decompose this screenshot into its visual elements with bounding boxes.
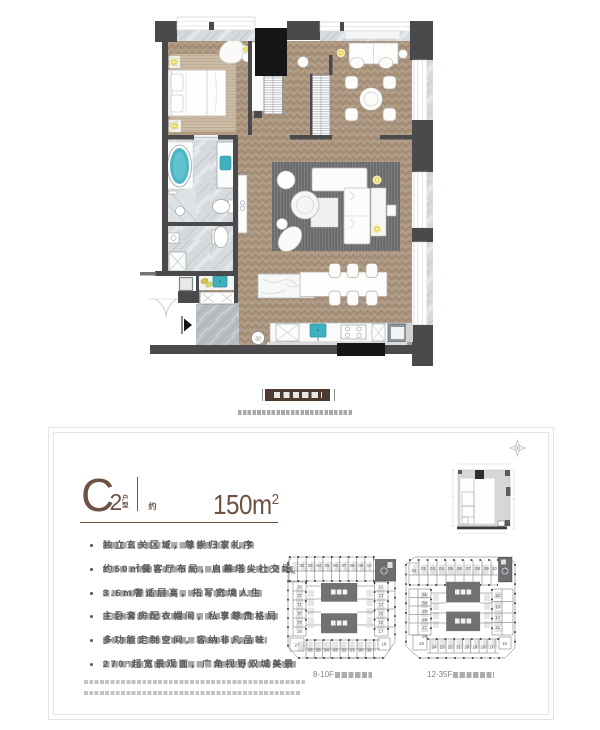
svg-text:15: 15: [495, 625, 500, 630]
svg-text:01: 01: [412, 568, 417, 573]
svg-text:22: 22: [448, 645, 453, 650]
svg-text:14: 14: [495, 615, 500, 620]
svg-text:23: 23: [440, 645, 445, 650]
svg-text:23: 23: [333, 648, 338, 653]
svg-text:12: 12: [379, 584, 384, 589]
svg-text:22: 22: [342, 648, 347, 653]
svg-text:29: 29: [422, 609, 427, 614]
svg-text:17: 17: [379, 629, 384, 634]
svg-text:18: 18: [481, 645, 486, 650]
svg-text:21: 21: [456, 645, 461, 650]
svg-text:20: 20: [359, 648, 364, 653]
svg-text:31: 31: [297, 602, 302, 607]
svg-text:04: 04: [439, 566, 444, 571]
svg-text:08: 08: [475, 566, 480, 571]
svg-text:07: 07: [466, 566, 471, 571]
svg-text:25: 25: [419, 641, 424, 646]
svg-text:10: 10: [492, 566, 497, 571]
svg-text:04: 04: [316, 563, 321, 568]
svg-text:08: 08: [350, 563, 355, 568]
svg-text:16: 16: [379, 620, 384, 625]
svg-text:24: 24: [324, 648, 329, 653]
svg-text:28: 28: [297, 629, 302, 634]
svg-text:28: 28: [422, 617, 427, 622]
svg-text:29: 29: [297, 620, 302, 625]
svg-text:20: 20: [464, 645, 469, 650]
svg-text:27: 27: [295, 643, 300, 648]
svg-text:16: 16: [502, 641, 507, 646]
svg-text:19: 19: [473, 645, 478, 650]
svg-text:02: 02: [300, 563, 305, 568]
svg-text:33: 33: [297, 584, 302, 589]
svg-text:10: 10: [367, 563, 372, 568]
svg-text:26: 26: [308, 648, 313, 653]
svg-text:18: 18: [382, 642, 387, 647]
svg-text:03: 03: [430, 566, 435, 571]
svg-text:01: 01: [291, 570, 296, 575]
svg-text:02: 02: [421, 566, 426, 571]
svg-text:14: 14: [379, 602, 384, 607]
svg-text:32: 32: [297, 593, 302, 598]
svg-text:13: 13: [495, 605, 500, 610]
svg-text:09: 09: [358, 563, 363, 568]
svg-text:07: 07: [342, 563, 347, 568]
svg-text:24: 24: [432, 645, 437, 650]
svg-text:06: 06: [333, 563, 338, 568]
svg-text:03: 03: [308, 563, 313, 568]
svg-text:26: 26: [422, 634, 427, 639]
svg-text:05: 05: [325, 563, 330, 568]
svg-text:17: 17: [489, 645, 494, 650]
svg-text:06: 06: [457, 566, 462, 571]
svg-text:19: 19: [367, 648, 372, 653]
svg-text:25: 25: [316, 648, 321, 653]
svg-text:05: 05: [448, 566, 453, 571]
svg-text:30: 30: [297, 611, 302, 616]
svg-text:21: 21: [350, 648, 355, 653]
svg-text:31: 31: [422, 592, 427, 597]
svg-text:32: 32: [255, 337, 261, 343]
svg-text:27: 27: [422, 625, 427, 630]
svg-text:12: 12: [495, 593, 500, 598]
svg-text:09: 09: [484, 566, 489, 571]
svg-text:13: 13: [379, 593, 384, 598]
svg-text:30: 30: [422, 601, 427, 606]
svg-text:15: 15: [379, 611, 384, 616]
